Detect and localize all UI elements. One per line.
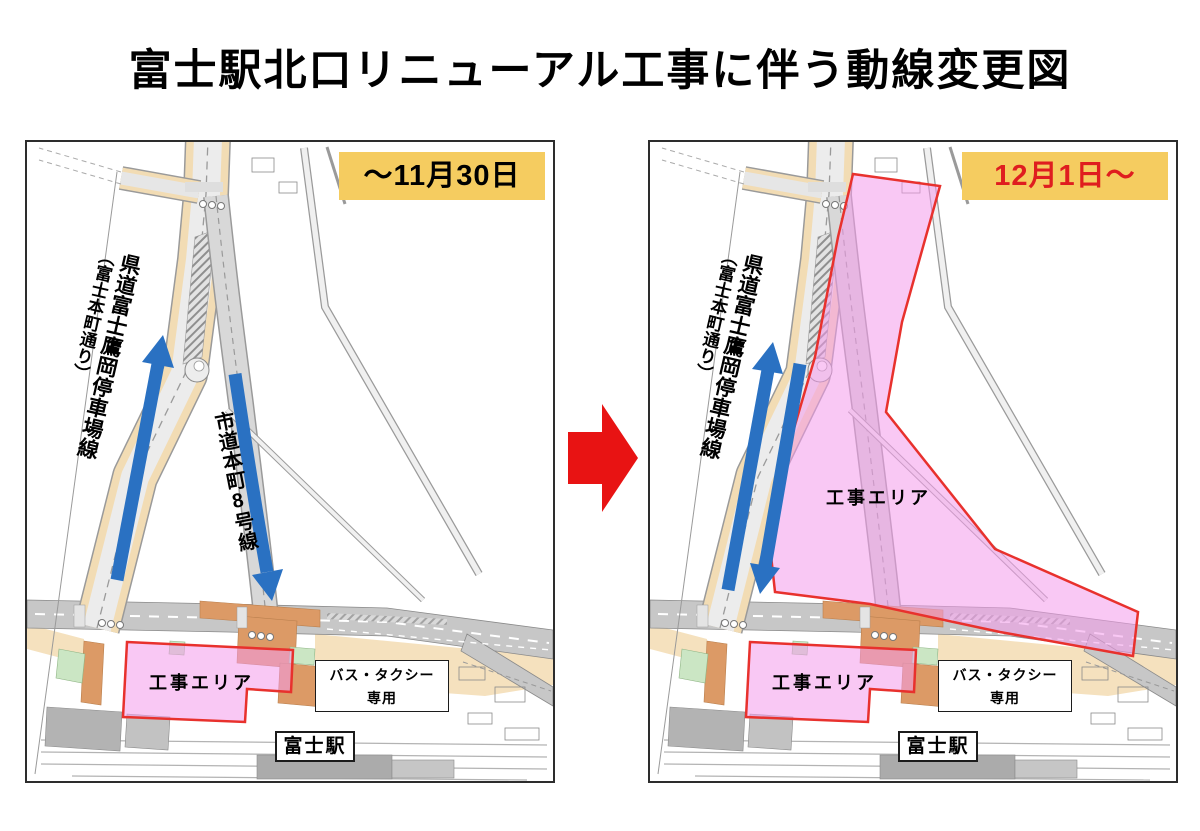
construction-area-label-main: 工事エリア — [826, 484, 931, 510]
bus-taxi-line1: バス・タクシー — [939, 664, 1071, 687]
map-panel-after: 12月1日～ 県道富士鷹岡停車場線 （富士本町通り） 工事エリア 工事エリア バ… — [648, 140, 1178, 783]
bus-taxi-line2: 専用 — [316, 687, 448, 710]
bus-taxi-box: バス・タクシー 専用 — [315, 660, 449, 712]
bus-taxi-line1: バス・タクシー — [316, 664, 448, 687]
base-map-before — [27, 142, 553, 781]
construction-area-label-south: 工事エリア — [772, 669, 877, 695]
station-box: 富士駅 — [898, 731, 978, 762]
bus-taxi-line2: 専用 — [939, 687, 1071, 710]
period-badge-after: 12月1日～ — [962, 152, 1168, 200]
period-badge-before: ～11月30日 — [339, 152, 545, 200]
construction-area-label: 工事エリア — [149, 669, 254, 695]
map-panel-before: ～11月30日 県道富士鷹岡停車場線 （富士本町通り） 市道本町8号線 工事エリ… — [25, 140, 555, 783]
bus-taxi-box: バス・タクシー 専用 — [938, 660, 1072, 712]
up-flow-arrow-head — [752, 342, 783, 374]
base-map-after — [650, 142, 1176, 781]
page-title: 富士駅北口リニューアル工事に伴う動線変更図 — [0, 36, 1200, 98]
transition-arrow — [568, 404, 638, 512]
right-block-arrow-icon — [568, 404, 638, 512]
station-box: 富士駅 — [275, 731, 355, 762]
